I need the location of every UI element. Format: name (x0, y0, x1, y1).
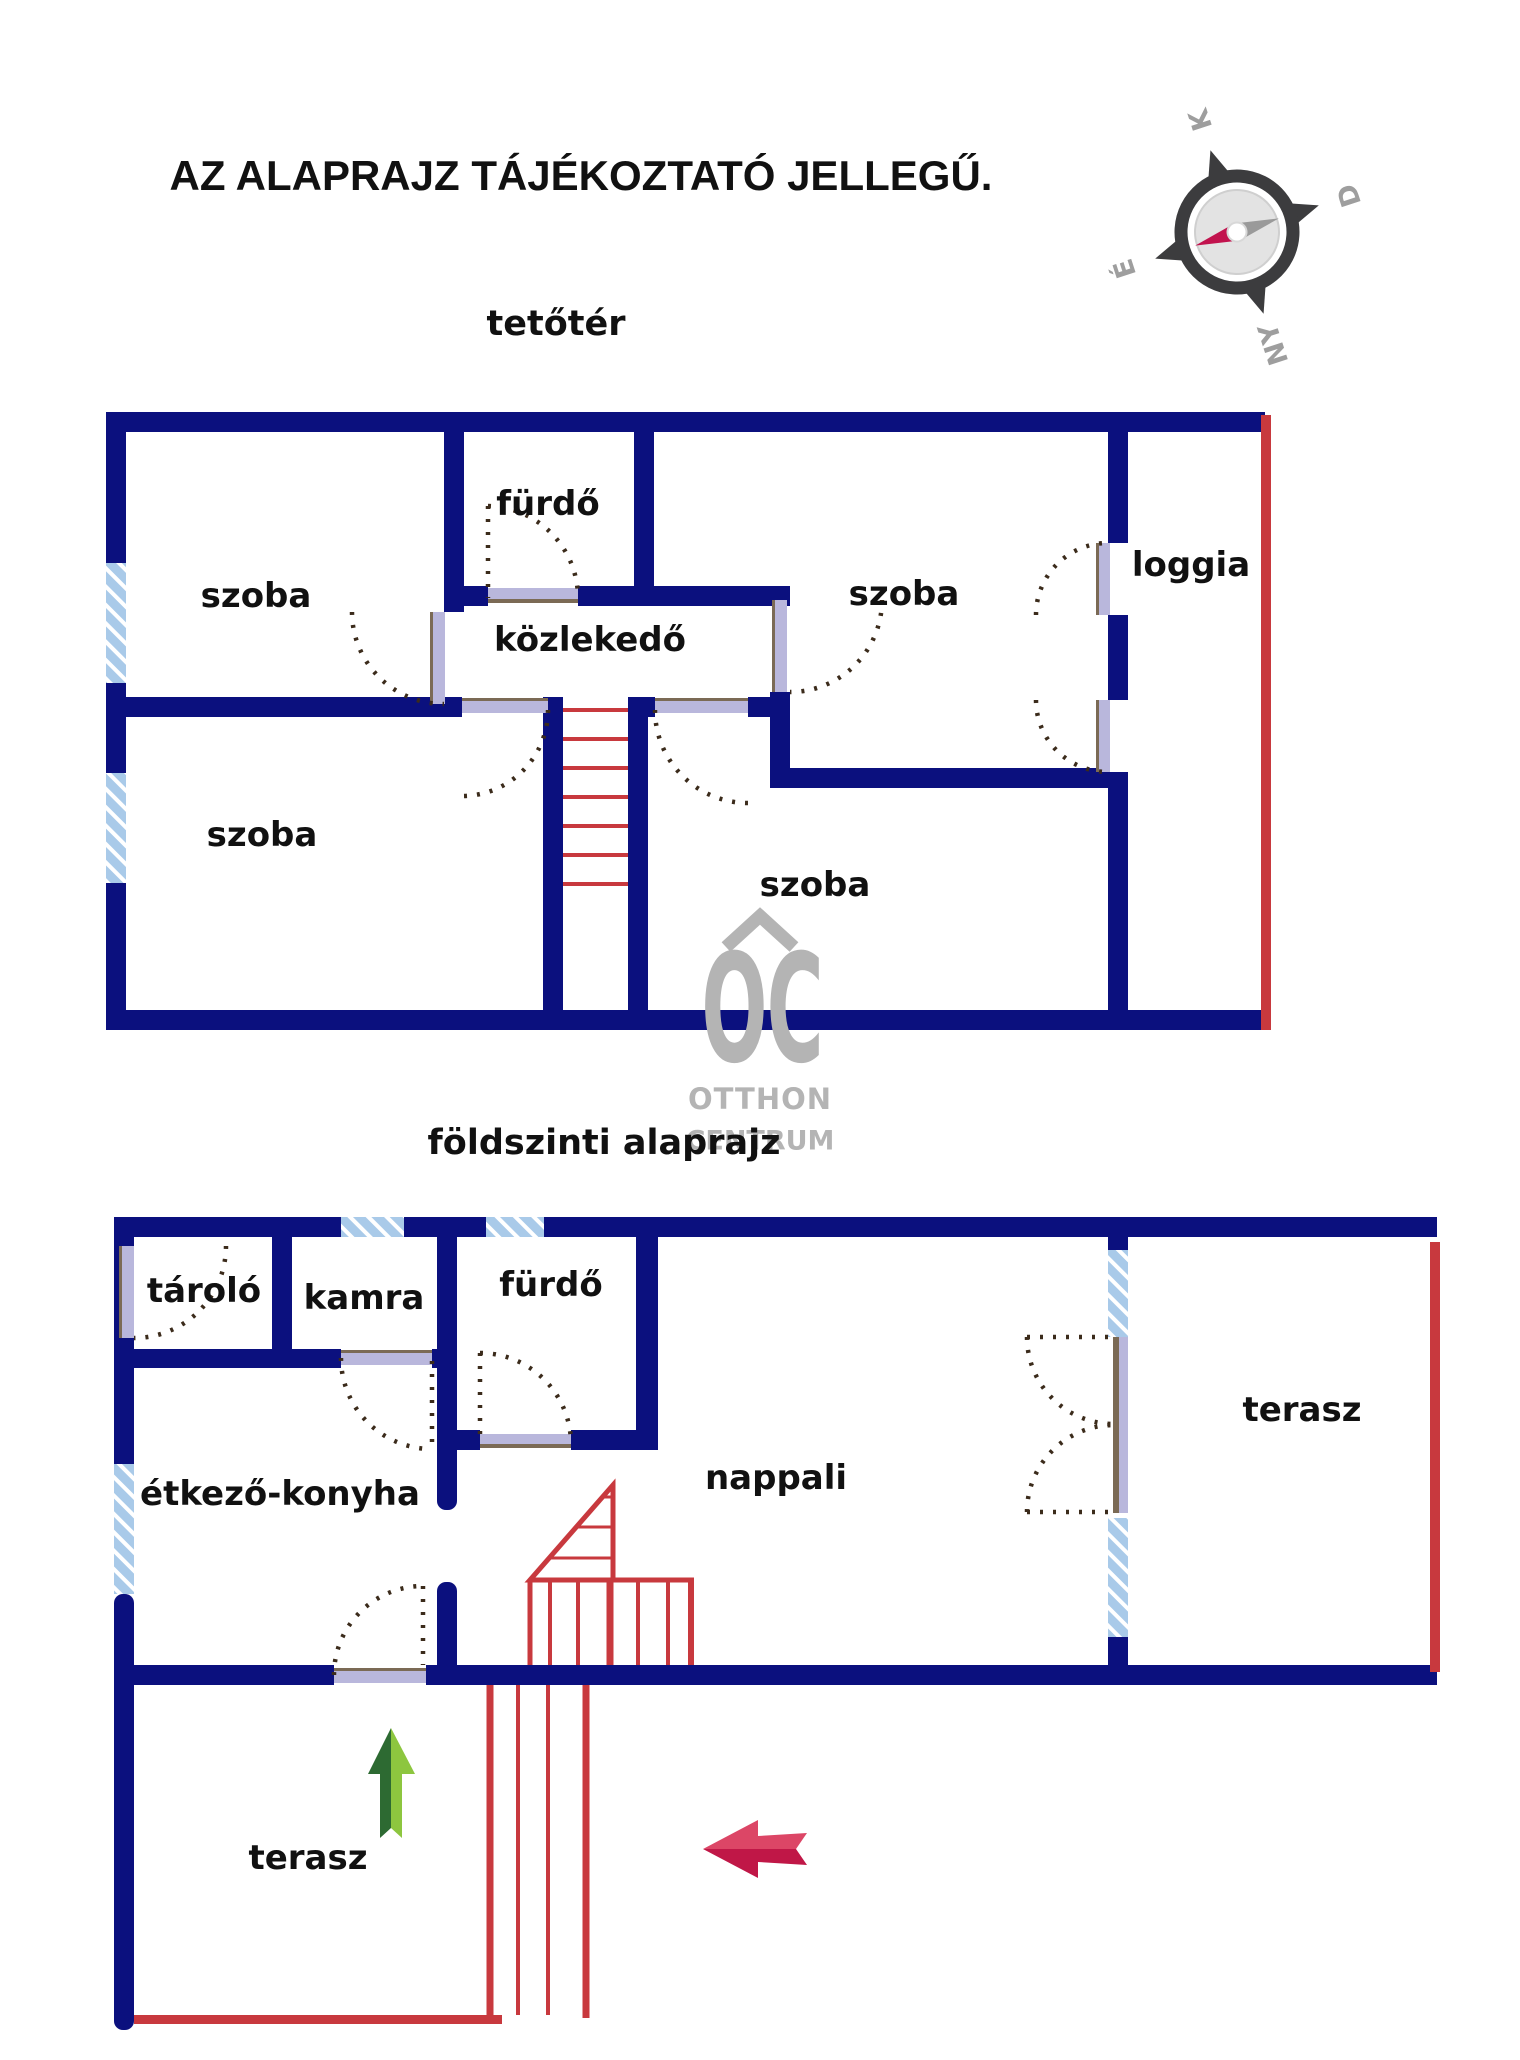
compass-north-label: É (1107, 255, 1143, 282)
ground-staircase (530, 1485, 694, 1665)
attic-door-arcs (352, 506, 1108, 803)
compass-east-label: K (1183, 104, 1219, 135)
compass-west-label: NY (1253, 319, 1296, 369)
ground-walls (114, 1217, 1437, 2030)
room-label-kamra: kamra (304, 1278, 425, 1318)
room-label-attic-szoba-top-left: szoba (201, 576, 312, 616)
room-label-ground-furdo: fürdő (499, 1265, 602, 1305)
floorplan-page: { "title": "AZ ALAPRAJZ TÁJÉKOZTATÓ JELL… (0, 0, 1520, 2060)
room-label-terasz-bottom: terasz (248, 1838, 367, 1878)
room-label-terasz-right: terasz (1242, 1390, 1361, 1430)
compass-south-label: D (1331, 180, 1367, 211)
room-label-tarolo: tároló (147, 1271, 261, 1311)
compass-icon: É K D NY (1070, 67, 1408, 405)
ground-floorplan (114, 1217, 1440, 2030)
ground-section-label: földszinti alaprajz (428, 1123, 781, 1163)
room-label-attic-szoba-bottom-left: szoba (207, 815, 318, 855)
attic-staircase (563, 710, 628, 884)
watermark-monogram: OC (701, 923, 822, 1097)
disclaimer-title: AZ ALAPRAJZ TÁJÉKOZTATÓ JELLEGŰ. (170, 152, 993, 200)
ground-door-leaves (119, 1246, 1128, 1683)
room-label-attic-szoba-top-right: szoba (849, 574, 960, 614)
room-label-attic-szoba-bottom-right: szoba (760, 865, 871, 905)
watermark-line1: OTTHON (688, 1082, 832, 1116)
room-label-attic-kozlekedo: közlekedő (494, 620, 686, 660)
room-label-etkezo-konyha: étkező-konyha (140, 1474, 420, 1514)
left-arrow-icon (703, 1820, 807, 1878)
terrace-edge-red (134, 2015, 502, 2024)
room-label-attic-furdo: fürdő (496, 484, 599, 524)
ground-shared-wall-red (1430, 1242, 1440, 1672)
attic-floorplan (106, 412, 1271, 1030)
room-label-attic-loggia: loggia (1132, 545, 1250, 585)
attic-shared-wall-red (1261, 415, 1271, 1030)
attic-walls (106, 412, 1265, 1030)
up-arrow-icon (368, 1728, 415, 1838)
exit-staircase (490, 1685, 586, 2018)
attic-section-label: tetőtér (487, 304, 626, 344)
ground-windows (114, 1217, 1128, 1637)
room-label-nappali: nappali (705, 1458, 847, 1498)
